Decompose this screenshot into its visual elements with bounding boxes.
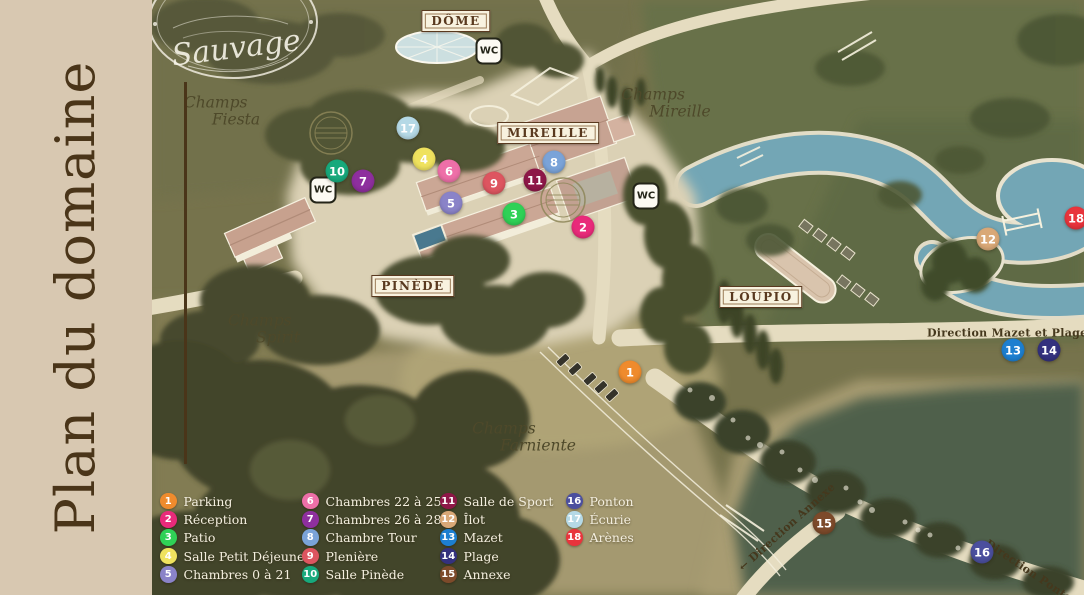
legend-item-3: 3Patio [160, 529, 310, 547]
page-title: Plan du domaine [49, 61, 103, 535]
legend-item-13: 13Mazet [440, 529, 553, 547]
legend-item-6: 6Chambres 22 à 25 [302, 492, 441, 510]
map-marker-16[interactable]: 16 [971, 541, 994, 564]
legend-dot-1: 1 [160, 493, 177, 510]
map-marker-11[interactable]: 11 [524, 169, 547, 192]
map-marker-18[interactable]: 18 [1065, 207, 1084, 230]
legend-label-14: Plage [464, 549, 499, 564]
legend-item-10: 10Salle Pinède [302, 565, 441, 583]
legend-dot-2: 2 [160, 511, 177, 528]
wc-badge-2: WC [476, 38, 503, 65]
map-marker-2[interactable]: 2 [572, 216, 595, 239]
map-marker-5[interactable]: 5 [440, 192, 463, 215]
legend-label-15: Annexe [464, 567, 511, 582]
legend-dot-7: 7 [302, 511, 319, 528]
legend-label-7: Chambres 26 à 28 [326, 512, 442, 527]
legend-dot-4: 4 [160, 548, 177, 565]
map-sign-dôme: DÔME [421, 10, 490, 32]
legend-item-12: 12Îlot [440, 510, 553, 528]
legend-column-2: 6Chambres 22 à 257Chambres 26 à 288Chamb… [302, 492, 441, 583]
legend-dot-3: 3 [160, 529, 177, 546]
title-underline [184, 82, 187, 464]
map-marker-13[interactable]: 13 [1002, 339, 1025, 362]
map-marker-17[interactable]: 17 [397, 117, 420, 140]
legend-dot-9: 9 [302, 548, 319, 565]
legend-label-4: Salle Petit Déjeuner [184, 549, 311, 564]
legend-dot-12: 12 [440, 511, 457, 528]
legend-dot-16: 16 [566, 493, 583, 510]
legend-label-2: Réception [184, 512, 248, 527]
map-marker-10[interactable]: 10 [326, 160, 349, 183]
legend-item-11: 11Salle de Sport [440, 492, 553, 510]
map-sign-mireille: MIREILLE [497, 122, 599, 144]
legend-dot-14: 14 [440, 548, 457, 565]
legend-dot-8: 8 [302, 529, 319, 546]
legend-item-14: 14Plage [440, 547, 553, 565]
map-canvas: Sauvage DÔMEMIREILLEPINÈDELOUPIOWCWCWCCh… [152, 0, 1084, 595]
legend-item-5: 5Chambres 0 à 21 [160, 565, 310, 583]
legend-column-3: 11Salle de Sport12Îlot13Mazet14Plage15An… [440, 492, 553, 583]
legend-item-1: 1Parking [160, 492, 310, 510]
legend-label-12: Îlot [464, 512, 485, 527]
legend-column-1: 1Parking2Réception3Patio4Salle Petit Déj… [160, 492, 310, 583]
legend-item-8: 8Chambre Tour [302, 529, 441, 547]
direction-label-1: Direction Mazet et Plage → [927, 327, 1084, 340]
legend-label-17: Écurie [590, 512, 632, 527]
field-label-mireille: ChampsMireille [621, 87, 710, 122]
map-overlays: DÔMEMIREILLEPINÈDELOUPIOWCWCWCChampsFies… [152, 0, 1084, 595]
legend-item-4: 4Salle Petit Déjeuner [160, 547, 310, 565]
map-marker-4[interactable]: 4 [413, 148, 436, 171]
map-marker-6[interactable]: 6 [438, 160, 461, 183]
map-marker-3[interactable]: 3 [503, 203, 526, 226]
sidebar: Plan du domaine [0, 0, 152, 595]
legend-dot-17: 17 [566, 511, 583, 528]
map-marker-9[interactable]: 9 [483, 172, 506, 195]
legend-dot-11: 11 [440, 493, 457, 510]
legend-dot-5: 5 [160, 566, 177, 583]
legend-label-10: Salle Pinède [326, 567, 405, 582]
legend-label-16: Ponton [590, 494, 634, 509]
legend-item-17: 17Écurie [566, 510, 634, 528]
legend-label-6: Chambres 22 à 25 [326, 494, 442, 509]
legend-dot-18: 18 [566, 529, 583, 546]
legend-label-3: Patio [184, 530, 216, 545]
legend-column-4: 16Ponton17Écurie18Arènes [566, 492, 634, 547]
legend-label-8: Chambre Tour [326, 530, 417, 545]
plan-du-domaine-page: Sauvage DÔMEMIREILLEPINÈDELOUPIOWCWCWCCh… [0, 0, 1084, 595]
map-marker-7[interactable]: 7 [352, 170, 375, 193]
map-marker-12[interactable]: 12 [977, 228, 1000, 251]
map-marker-14[interactable]: 14 [1038, 339, 1061, 362]
field-label-fiesta: ChampsFiesta [184, 95, 260, 130]
legend-label-9: Plenière [326, 549, 379, 564]
direction-label-3: Direction Ponton → [983, 537, 1084, 595]
legend-item-15: 15Annexe [440, 565, 553, 583]
legend-item-16: 16Ponton [566, 492, 634, 510]
legend-label-18: Arènes [590, 530, 634, 545]
legend-dot-15: 15 [440, 566, 457, 583]
legend-label-5: Chambres 0 à 21 [184, 567, 292, 582]
map-sign-loupio: LOUPIO [719, 286, 802, 308]
legend-label-13: Mazet [464, 530, 503, 545]
legend-item-7: 7Chambres 26 à 28 [302, 510, 441, 528]
map-marker-1[interactable]: 1 [619, 361, 642, 384]
map-sign-pinède: PINÈDE [371, 275, 454, 297]
map-marker-8[interactable]: 8 [543, 151, 566, 174]
legend-dot-13: 13 [440, 529, 457, 546]
legend-item-9: 9Plenière [302, 547, 441, 565]
legend-label-11: Salle de Sport [464, 494, 554, 509]
legend-item-18: 18Arènes [566, 529, 634, 547]
field-label-farniente: ChampsFarniente [472, 421, 576, 456]
legend-dot-6: 6 [302, 493, 319, 510]
legend-item-2: 2Réception [160, 510, 310, 528]
legend-label-1: Parking [184, 494, 233, 509]
wc-badge-3: WC [633, 183, 660, 210]
legend-dot-10: 10 [302, 566, 319, 583]
field-label-spirit: ChampsSpirit [228, 313, 300, 348]
map-marker-15[interactable]: 15 [813, 512, 836, 535]
